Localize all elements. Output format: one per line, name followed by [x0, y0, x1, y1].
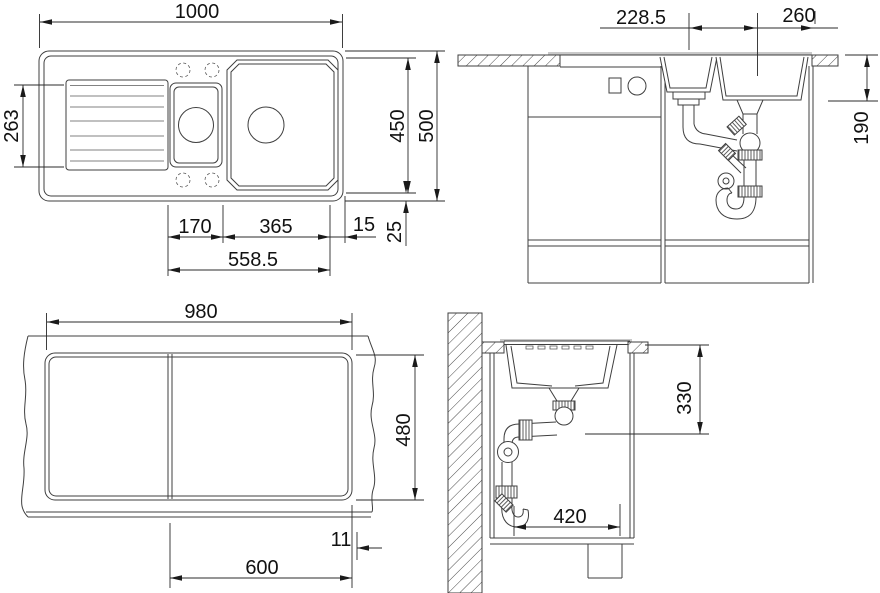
- technical-drawing-canvas: 1000 263 450 500 25: [0, 0, 880, 593]
- dim-cutout-height: 480: [356, 355, 424, 500]
- cutout-view: 980 480 600 11: [22, 301, 424, 588]
- break-line-left: [22, 336, 28, 517]
- side-view: 330 420: [448, 313, 709, 593]
- dim-drainer-height: 263: [1, 85, 64, 167]
- dim-label-600: 600: [245, 557, 278, 579]
- dim-depth-to-outlet: 330: [585, 345, 709, 434]
- dim-rim-offset: 25: [384, 181, 409, 246]
- drawing-svg: 1000 263 450 500 25: [0, 0, 880, 593]
- ball-joint: [555, 407, 573, 425]
- dim-edge-offset: 11: [331, 529, 382, 560]
- cutout-divider: [168, 354, 172, 499]
- front-view: 228.5 260 190: [458, 5, 878, 283]
- sink-outer-edge: [39, 51, 343, 201]
- large-bowl-drain: [248, 107, 284, 143]
- dim-label-190: 190: [851, 111, 873, 144]
- worktop-hatch-right: [628, 342, 648, 353]
- dim-label-480: 480: [393, 413, 415, 446]
- wall-section: [448, 313, 482, 593]
- dim-label-170: 170: [178, 216, 211, 238]
- dim-label-420: 420: [553, 506, 586, 528]
- large-bowl-section: [716, 55, 808, 219]
- dim-label-450: 450: [387, 109, 409, 142]
- drainboard: [66, 80, 168, 170]
- sink-inner-rim: [44, 56, 338, 196]
- cleanout-fitting: [718, 173, 734, 189]
- break-line-right: [368, 336, 375, 512]
- dim-heights: 450 500: [345, 51, 445, 201]
- strainer-flange: [673, 92, 705, 99]
- overflow-slots: [526, 346, 593, 349]
- small-bowl-drain: [179, 108, 214, 143]
- dim-overall-width: 1000: [40, 1, 343, 48]
- pipe-nut: [519, 420, 532, 440]
- dim-label-980: 980: [184, 301, 217, 323]
- cutout-opening: [45, 353, 352, 500]
- dim-label-263: 263: [1, 109, 23, 142]
- tap-hole-icon: [205, 63, 219, 77]
- cabinet-handle-square: [609, 78, 621, 93]
- dim-label-260: 260: [782, 5, 815, 27]
- worktop-hatch-right: [812, 55, 838, 66]
- top-view: 1000 263 450 500 25: [1, 1, 445, 276]
- bowl-side-section: [495, 339, 632, 527]
- cabinet-knob-circle: [628, 77, 646, 95]
- worktop-outline: [22, 336, 376, 517]
- dim-label-25: 25: [384, 221, 406, 243]
- drain-funnel: [549, 388, 579, 401]
- dim-label-1000: 1000: [175, 1, 220, 23]
- dim-bowl-depth: 190: [828, 55, 878, 145]
- large-bowl: [227, 60, 338, 190]
- wall-outlet-flange: [498, 442, 519, 463]
- tap-holes: [176, 63, 219, 187]
- dim-label-11: 11: [331, 529, 352, 551]
- dim-label-500: 500: [416, 109, 438, 142]
- dim-clearance: 420: [514, 504, 620, 536]
- drain-funnel: [737, 100, 763, 114]
- dim-label-15: 15: [353, 214, 375, 236]
- pipe-nut: [738, 186, 762, 197]
- pipe-nut: [738, 150, 762, 160]
- small-bowl: [170, 83, 222, 167]
- worktop-hatch-left: [458, 55, 560, 66]
- tap-hole-icon: [176, 63, 190, 77]
- dim-label-365: 365: [259, 216, 292, 238]
- worktop-hatch-left: [482, 342, 504, 353]
- inlet-cap-nut: [719, 144, 736, 161]
- dim-cutout-width: 980: [47, 301, 353, 350]
- dim-label-558.5: 558.5: [228, 249, 278, 271]
- dim-label-330: 330: [674, 381, 696, 414]
- dim-bottom-row: 170 365 15 558.5: [168, 196, 376, 276]
- dim-label-228.5: 228.5: [616, 7, 666, 29]
- tap-hole-icon: [176, 173, 190, 187]
- tap-hole-icon: [205, 173, 219, 187]
